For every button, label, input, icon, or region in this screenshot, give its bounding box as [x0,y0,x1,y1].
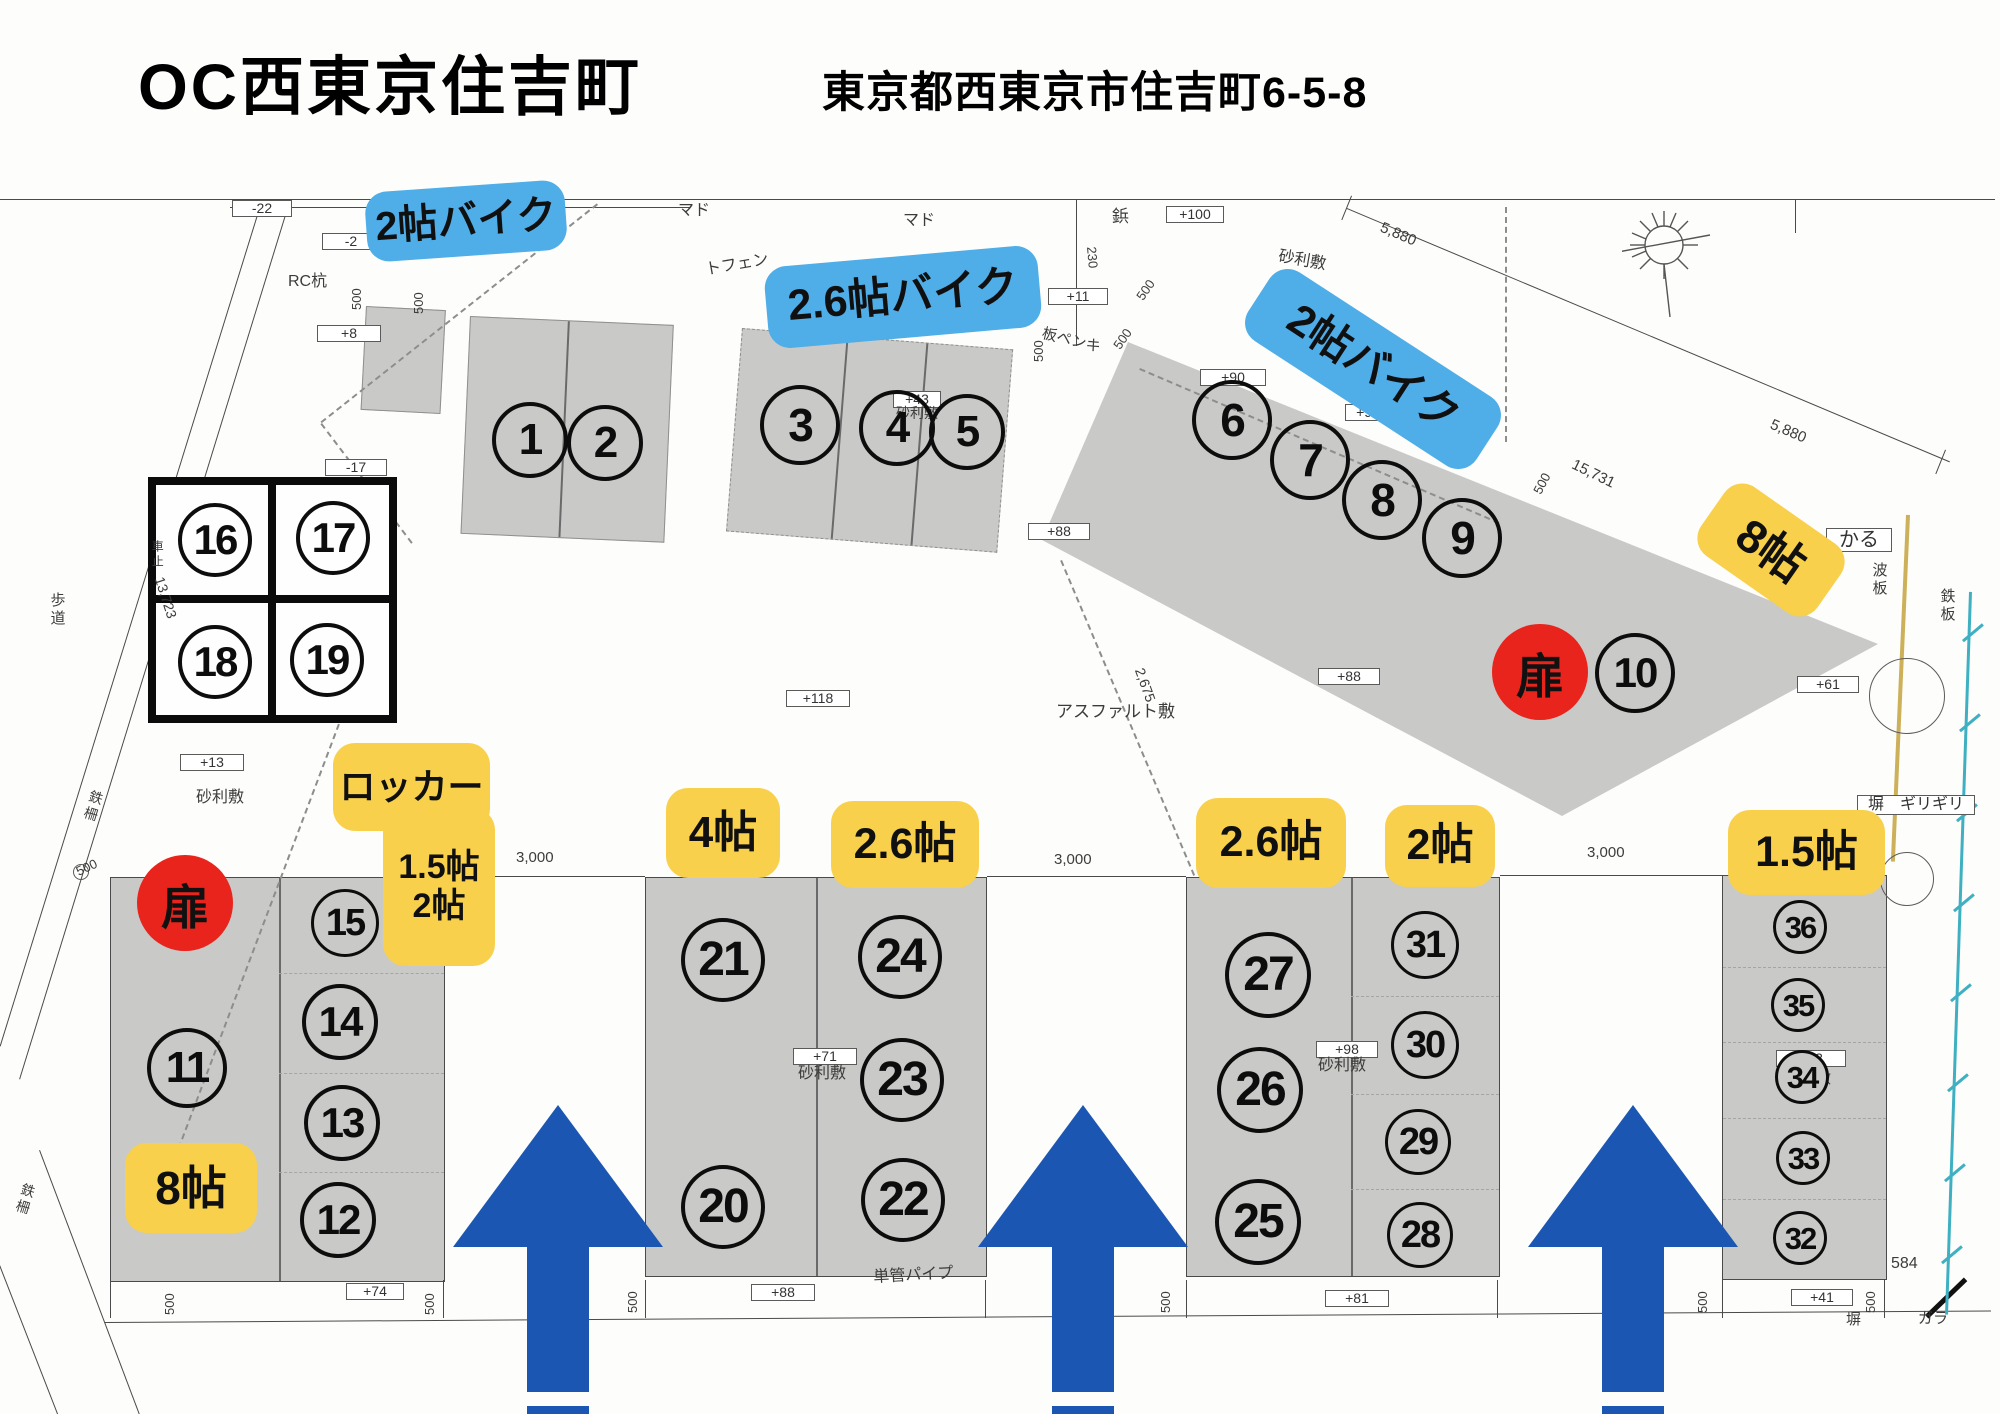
label-8jo-left: 8帖 [125,1143,257,1233]
entrance-arrow-stem [1052,1245,1114,1392]
unit-circle-32: 32 [1773,1211,1827,1265]
annotation-5,880: 5,880 [1378,220,1419,250]
annotation-584: 584 [1891,1255,1918,1273]
annotation-3,000: 3,000 [1054,852,1092,869]
unit-circle-19: 19 [290,623,364,697]
unit-circle-18: 18 [178,625,252,699]
label-1.5jo: 1.5帖 [1728,810,1885,895]
[object [1664,264,1670,317]
sticker-label-text: 2.6帖 [1220,818,1323,867]
sticker-label-text: 2.6帖バイク [786,262,1020,331]
unit-circle-26: 26 [1217,1047,1303,1133]
unit-circle-5: 5 [929,394,1005,470]
annotation-500: 500 [1159,1291,1173,1313]
survey-circle [1869,658,1945,734]
annotation-3,000: 3,000 [1587,845,1625,862]
annotation-500: 500 [1032,340,1046,362]
unit-circle-7: 7 [1270,420,1350,500]
[object [1632,251,1646,257]
door-marker: 扉 [137,855,233,951]
door-label: 扉 [1516,637,1564,707]
[object [1677,258,1688,269]
compass-icon [1622,205,1714,320]
[object [1632,233,1646,239]
annotation-+13: +13 [180,754,244,771]
annotation-ガラ: ガラ [1918,1311,1948,1328]
corner-tick [1497,1280,1498,1318]
annotation-砂利敷: 砂利敷 [798,1065,846,1083]
label-2.6jo-a: 2.6帖 [831,801,979,888]
label-locker-sizes: 1.5帖2帖 [383,808,495,966]
unit-circle-16: 16 [178,503,252,577]
unit-circle-1: 1 [492,402,568,478]
unit-circle-2: 2 [567,405,643,481]
annotation-500: 500 [1864,1291,1878,1313]
annotation-+100: +100 [1166,206,1224,223]
annotation-歩道: 歩道 [48,592,65,628]
unit-circle-10: 10 [1595,633,1675,713]
entrance-arrow-head [453,1105,663,1247]
unit-circle-30: 30 [1391,1011,1459,1079]
sidewalk-line [0,1265,58,1414]
label-4jo: 4帖 [666,788,780,878]
unit-circle-29: 29 [1385,1109,1451,1175]
annotation-500: 500 [74,857,100,879]
annotation-+61: +61 [1797,676,1859,693]
annotation-砂利敷: 砂利敷 [196,789,244,807]
corner-tick [110,1280,111,1318]
unit-circle-6: 6 [1192,380,1272,460]
unit-circle-13: 13 [304,1085,380,1161]
[object [1677,221,1688,232]
annotation-マド: マド [678,202,710,220]
stall-divider [1723,1118,1886,1119]
grid-divider-h [156,595,389,603]
[object [1652,213,1658,227]
[object [1622,211,1710,317]
unit-circle-31: 31 [1391,911,1459,979]
annotation-500: 500 [423,1293,437,1315]
sticker-label-text: 2帖 [413,887,466,926]
sticker-label-text: 1.5帖 [398,848,479,887]
survey-circle [1880,852,1934,906]
unit-circle-8: 8 [1342,460,1422,540]
entrance-arrow-stem-stub [1602,1406,1664,1414]
stall-divider [1351,1094,1499,1095]
annotation-塀: 塀 [1846,1312,1861,1329]
sticker-label-text: 8帖 [155,1162,227,1215]
[object [1670,213,1676,227]
annotation-RC杭: RC杭 [288,273,327,291]
unit-circle-11: 11 [147,1028,227,1108]
annotation-500: 500 [163,1293,177,1315]
entrance-arrow-stem-stub [1052,1406,1114,1414]
teal-hatch [1950,983,1972,1002]
annotation--17: -17 [325,459,387,476]
annotation-砂利敷: 砂利敷 [1318,1057,1366,1075]
teal-hatch [1947,1073,1969,1092]
annotation--22: -22 [232,200,292,217]
sticker-label-text: 2帖バイク [374,192,558,251]
annotation-500: 500 [626,1291,640,1313]
annotation-+98: +98 [1316,1041,1378,1058]
stall-divider [1351,996,1499,997]
teal-hatch [1962,623,1984,642]
sticker-label-text: 1.5帖 [1755,828,1858,877]
annotation-230: 230 [1084,246,1100,269]
dim-tick [1935,450,1946,475]
annotation-+81: +81 [1325,1290,1389,1307]
entrance-arrow-stem [527,1245,589,1392]
annotation-+71: +71 [793,1048,857,1065]
unit-circle-9: 9 [1422,498,1502,578]
page-title: OC西東京住吉町 [138,36,642,128]
door-label: 扉 [161,868,209,938]
unit-circle-3: 3 [760,385,840,465]
stall-divider [1723,1199,1886,1200]
unit-circle-22: 22 [861,1158,945,1242]
annotation-500: 500 [1531,471,1554,497]
page-address: 東京都西東京市住吉町6-5-8 [822,58,1367,120]
annotation-+8: +8 [317,325,381,342]
unit-circle-35: 35 [1771,978,1825,1032]
entrance-arrow-stem [1602,1245,1664,1392]
entrance-arrow-head [1528,1105,1738,1247]
annotation-単管パイプ: 単管パイプ [873,1265,954,1287]
annotation-+118: +118 [786,690,850,707]
sticker-label-text: 8帖 [1727,508,1816,592]
label-bike-2.6jo: 2.6帖バイク [763,244,1043,350]
dim-line [987,876,1186,877]
stall-divider [279,973,444,974]
stall-divider [1351,1189,1499,1190]
stall-divider [279,1073,444,1074]
teal-hatch [1944,1163,1966,1182]
unit-circle-36: 36 [1773,900,1827,954]
entrance-arrow-head [978,1105,1188,1247]
stall-divider [1723,967,1886,968]
annotation-鉄柵: 鉄柵 [80,788,105,825]
sticker-label-text: 2.6帖 [854,820,957,869]
teal-hatch [1941,1245,1963,1264]
entrance-arrow-stem-stub [527,1406,589,1414]
annotation-鋲: 鋲 [1112,208,1129,227]
annotation-マド: マド [903,212,935,230]
annotation-500: 500 [1134,277,1158,303]
boundary-line-top [0,199,1995,200]
dashed-boundary [1505,207,1507,442]
unit-circle-4: 4 [859,390,935,466]
annotation-500: 500 [350,288,364,310]
annotation-塀 ギリギリ: 塀 ギリギリ [1857,795,1975,815]
site-plan-canvas: OC西東京住吉町 東京都西東京市住吉町6-5-8 [0,0,2000,1414]
unit-circle-15: 15 [311,889,379,957]
unit-circle-23: 23 [860,1038,944,1122]
unit-circle-25: 25 [1215,1179,1301,1265]
structure-line [1795,199,1796,233]
label-bike-2jo-top: 2帖バイク [364,179,568,263]
[object [1640,258,1651,269]
[object [1640,221,1651,232]
annotation-板ペンキ: 板ペンキ [1040,326,1102,357]
annotation-+74: +74 [346,1283,404,1300]
unit-circle-17: 17 [296,501,370,575]
[object [1622,235,1710,252]
annotation-鉄板: 鉄板 [1938,588,1955,624]
annotation-+88: +88 [751,1284,815,1301]
unit-circle-28: 28 [1387,1202,1453,1268]
annotation-+88: +88 [1028,523,1090,540]
teal-hatch [1953,893,1975,912]
corner-tick [1884,1280,1885,1318]
sticker-label-text: ロッカー [339,766,483,807]
annotation-アスファルト敷: アスファルト敷 [1056,703,1175,722]
unit-circle-33: 33 [1776,1131,1830,1185]
annotation-15,731: 15,731 [1569,457,1617,492]
unit-circle-34: 34 [1775,1050,1829,1104]
annotation-車止: 車止 [150,540,163,570]
unit-circle-24: 24 [858,915,942,999]
corner-tick [645,1280,646,1318]
stall-divider [279,1172,444,1173]
unit-circle-12: 12 [300,1182,376,1258]
annotation-+88: +88 [1318,668,1380,685]
annotation-波板: 波板 [1870,562,1887,598]
corner-tick [1186,1280,1187,1318]
sticker-label-text: 2帖 [1407,821,1474,870]
stall-divider [1723,1042,1886,1043]
annotation-5,880: 5,880 [1768,417,1809,447]
block-divider [1351,878,1353,1276]
block-divider [279,878,281,1281]
door-marker: 扉 [1492,624,1588,720]
annotation-500: 500 [412,292,426,314]
structure-line [1076,200,1077,346]
unit-circle-27: 27 [1225,932,1311,1018]
parcel-small-square [361,306,446,414]
corner-tick [985,1280,986,1318]
label-2.6jo-b: 2.6帖 [1196,798,1346,888]
annotation-2,675: 2,675 [1132,666,1158,704]
annotation-3,000: 3,000 [516,850,554,867]
annotation-+41: +41 [1791,1289,1853,1306]
dim-line [1500,875,1722,876]
annotation-+11: +11 [1048,288,1108,305]
teal-hatch [1959,713,1981,732]
sticker-label-text: 4帖 [689,808,757,859]
annotation-トフェン: トフェン [704,251,770,279]
annotation-鉄柵: 鉄柵 [12,1181,37,1218]
unit-circle-14: 14 [302,984,378,1060]
corner-tick [443,1280,444,1318]
corner-tick [1722,1280,1723,1318]
unit-circle-20: 20 [681,1165,765,1249]
teal-boundary-line [1946,592,1972,1315]
label-2jo: 2帖 [1385,805,1495,887]
annotation-500: 500 [1696,1291,1710,1313]
unit-circle-21: 21 [681,918,765,1002]
